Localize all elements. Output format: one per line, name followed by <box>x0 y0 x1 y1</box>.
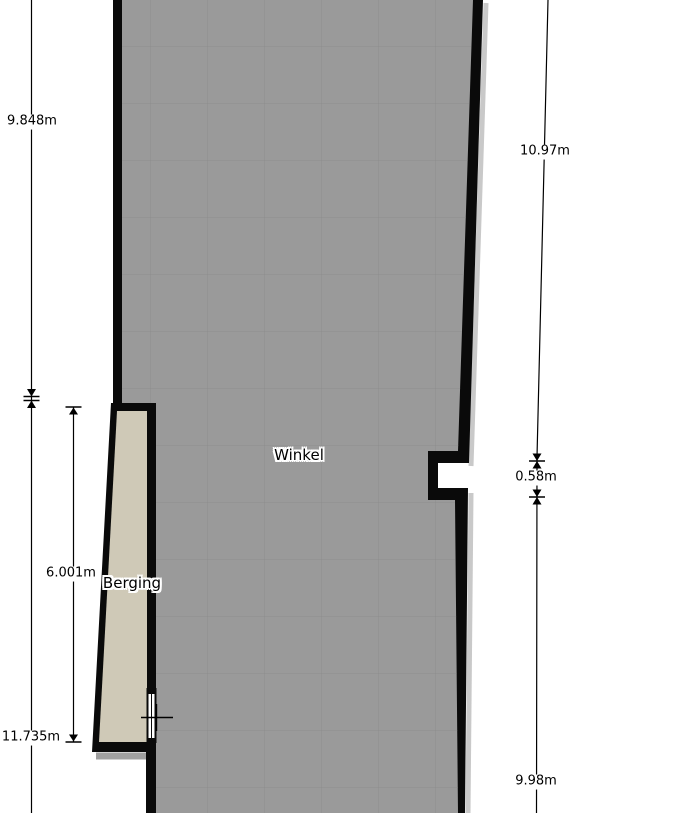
dimension-label-left-upper: 9.848m <box>5 115 59 130</box>
right-dimension-line <box>537 0 549 813</box>
dimension-label-berging-height: 6.001m <box>44 567 98 582</box>
dimension-label-right-lower: 9.98m <box>513 775 559 790</box>
room-label-winkel: Winkel <box>274 446 324 464</box>
room-label-berging: Berging <box>103 574 161 592</box>
right-wall-lower-shadow <box>468 493 471 813</box>
winkel-floor-grid <box>122 0 473 813</box>
floorplan-canvas: 9.848m 11.735m 6.001m 10.97m 0.58m 9.98m… <box>0 0 683 813</box>
dimension-label-left-lower: 11.735m <box>0 731 62 746</box>
dimension-label-right-upper: 10.97m <box>518 145 572 160</box>
floorplan-drawing <box>0 0 683 813</box>
dimension-label-notch-height: 0.58m <box>513 471 559 486</box>
window-symbol[interactable] <box>147 688 157 743</box>
